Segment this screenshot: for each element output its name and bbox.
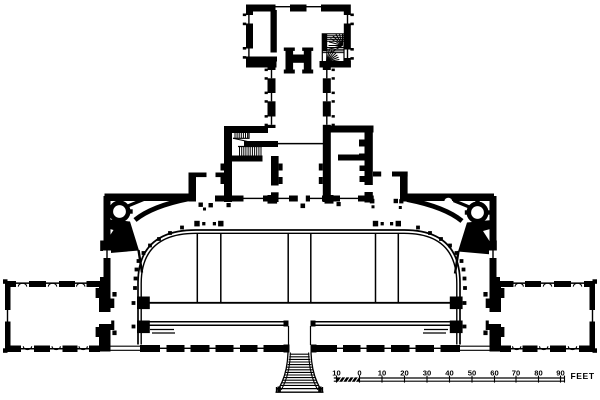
svg-text:FEET: FEET: [571, 371, 595, 381]
